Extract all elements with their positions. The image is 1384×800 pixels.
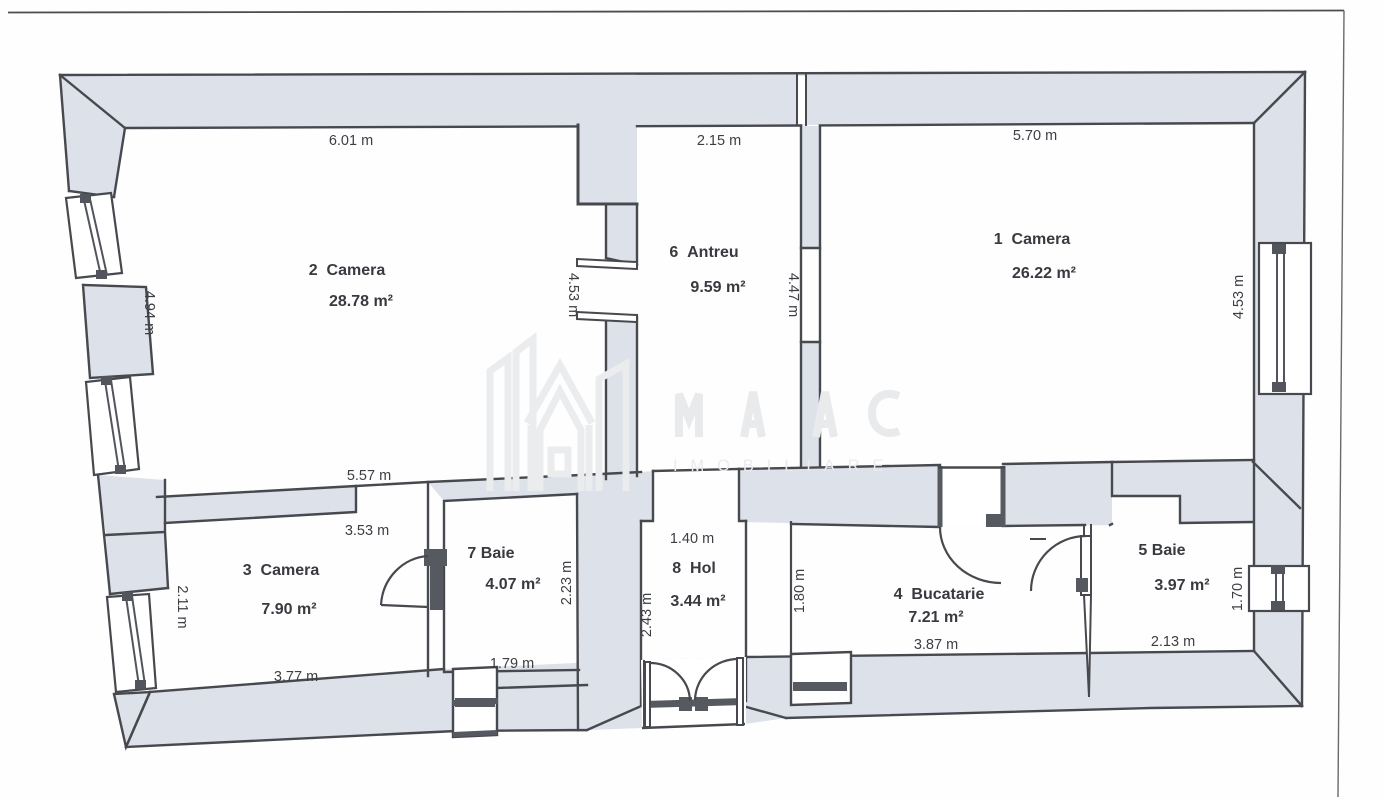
svg-text:6 Antreu: 6 Antreu: [669, 244, 738, 261]
svg-text:8 Hol: 8 Hol: [672, 560, 716, 577]
svg-text:2.13 m: 2.13 m: [1151, 634, 1195, 650]
svg-text:2.11 m: 2.11 m: [174, 585, 190, 628]
svg-text:3.44 m²: 3.44 m²: [670, 593, 725, 610]
svg-text:3 Camera: 3 Camera: [243, 562, 320, 579]
svg-text:1.79 m: 1.79 m: [490, 656, 534, 672]
svg-text:5.70 m: 5.70 m: [1013, 128, 1057, 144]
svg-text:4.94 m: 4.94 m: [141, 291, 157, 335]
svg-text:7.21 m²: 7.21 m²: [908, 609, 963, 626]
svg-text:1.40 m: 1.40 m: [670, 531, 714, 547]
svg-text:4.07 m²: 4.07 m²: [485, 576, 540, 593]
svg-text:IMOBILIARE: IMOBILIARE: [673, 457, 895, 475]
svg-text:7.90 m²: 7.90 m²: [261, 601, 316, 618]
svg-text:1.70 m: 1.70 m: [1230, 567, 1246, 611]
svg-text:3.77 m: 3.77 m: [274, 669, 318, 685]
svg-text:2.15 m: 2.15 m: [697, 133, 741, 149]
svg-text:26.22 m²: 26.22 m²: [1012, 265, 1076, 282]
svg-text:3.97 m²: 3.97 m²: [1154, 577, 1209, 594]
svg-text:1 Camera: 1 Camera: [994, 231, 1071, 248]
svg-text:9.59 m²: 9.59 m²: [690, 279, 745, 296]
svg-text:5.57 m: 5.57 m: [347, 468, 391, 484]
svg-text:5 Baie: 5 Baie: [1138, 542, 1185, 559]
svg-text:4.53 m: 4.53 m: [1231, 275, 1247, 319]
svg-text:4 Bucatarie: 4 Bucatarie: [894, 586, 985, 603]
svg-text:3.53 m: 3.53 m: [345, 523, 389, 539]
svg-text:2.23 m: 2.23 m: [559, 561, 575, 605]
svg-text:28.78 m²: 28.78 m²: [329, 293, 393, 310]
svg-text:3.87 m: 3.87 m: [914, 637, 958, 653]
svg-text:4.53 m: 4.53 m: [565, 273, 581, 317]
svg-text:4.47 m: 4.47 m: [785, 273, 801, 317]
svg-text:2.43 m: 2.43 m: [639, 593, 655, 637]
svg-text:6.01 m: 6.01 m: [329, 133, 373, 149]
svg-text:7 Baie: 7 Baie: [467, 545, 514, 562]
svg-text:1.80 m: 1.80 m: [792, 569, 808, 613]
svg-text:2 Camera: 2 Camera: [309, 262, 386, 279]
